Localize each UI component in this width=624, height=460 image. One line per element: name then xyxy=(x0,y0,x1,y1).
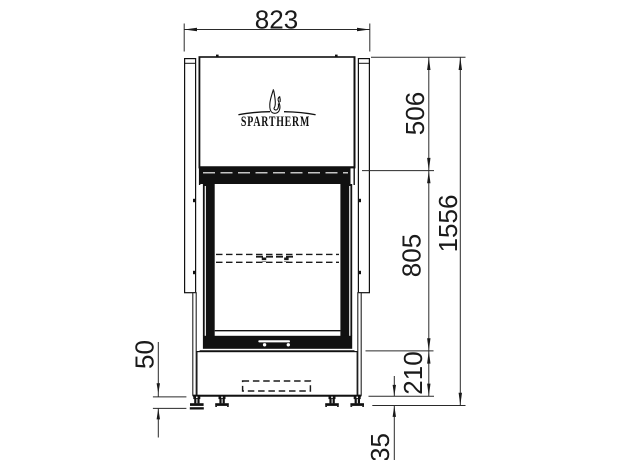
svg-text:210: 210 xyxy=(398,351,428,394)
svg-text:823: 823 xyxy=(255,4,298,34)
svg-text:50: 50 xyxy=(130,340,160,369)
svg-text:506: 506 xyxy=(400,92,430,135)
svg-text:1556: 1556 xyxy=(433,195,463,253)
svg-text:SPARTHERM: SPARTHERM xyxy=(241,113,310,129)
svg-text:35: 35 xyxy=(365,433,395,460)
svg-text:805: 805 xyxy=(397,234,427,277)
